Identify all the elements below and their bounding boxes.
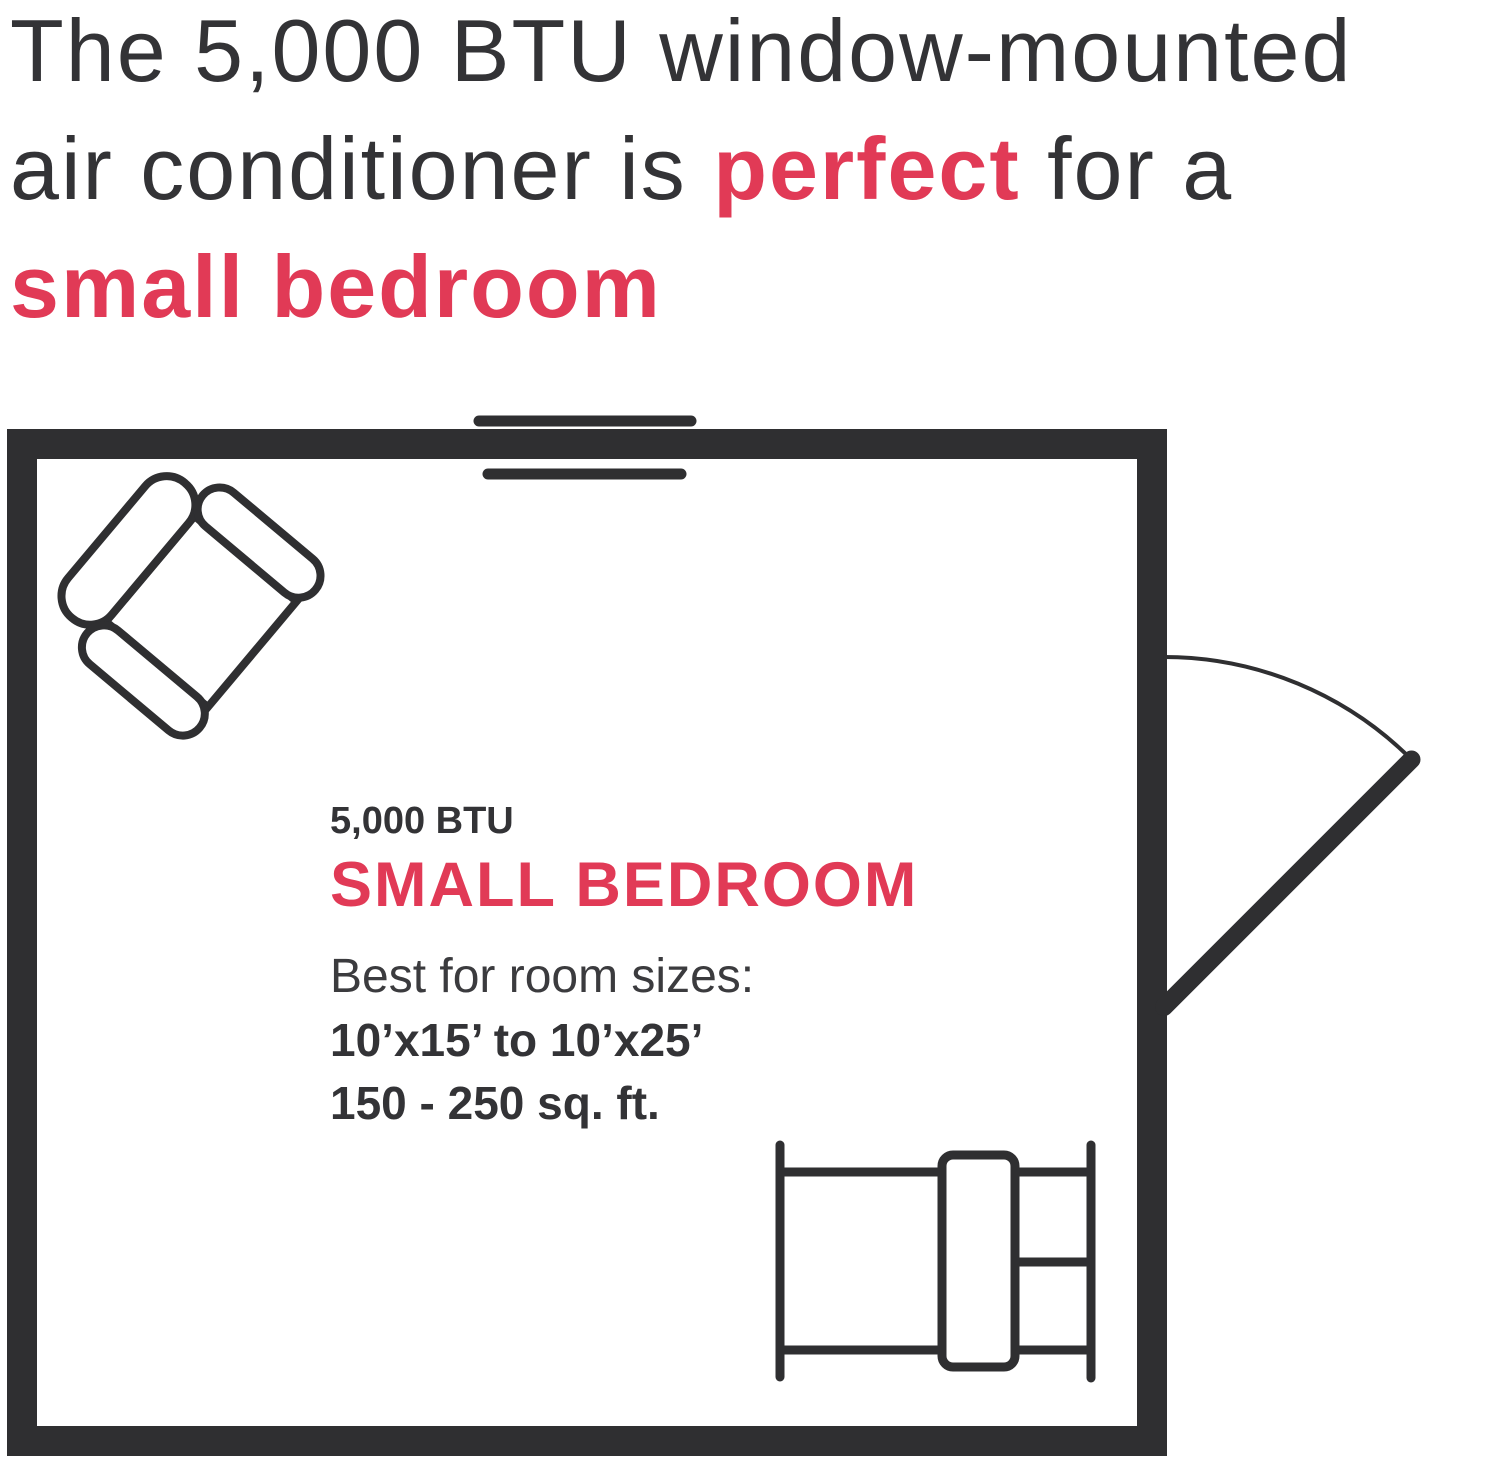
plan-annotation: 5,000 BTU SMALL BEDROOM Best for room si… [330,800,918,1129]
bed-icon [780,1145,1091,1378]
door-swing-icon [1164,657,1412,1007]
headline-text: The 5,000 BTU window-mounted [10,1,1352,100]
floorplan: 5,000 BTU SMALL BEDROOM Best for room si… [0,400,1500,1459]
btu-label: 5,000 BTU [330,800,514,842]
area-label: 150 - 250 sq. ft. [330,1077,660,1129]
door-swing-arc [1164,657,1412,760]
headline-text: air conditioner is [10,119,713,218]
fit-line-label: Best for room sizes: [330,950,754,1003]
headline-line-3: small bedroom [10,228,1495,346]
bed-pillow [942,1155,1015,1367]
headline-line-1: The 5,000 BTU window-mounted [10,0,1495,110]
door-leaf [1164,760,1412,1008]
floorplan-diagram: 5,000 BTU SMALL BEDROOM Best for room si… [0,400,1500,1459]
dimensions-label: 10’x15’ to 10’x25’ [330,1014,703,1066]
room-type-label: SMALL BEDROOM [330,850,918,920]
headline-text: for a [1021,119,1234,218]
infographic-page: The 5,000 BTU window-mounted air conditi… [0,0,1500,1459]
headline-highlight-small-bedroom: small bedroom [10,237,662,336]
headline-highlight-perfect: perfect [713,119,1020,218]
headline-line-2: air conditioner is perfect for a [10,110,1495,228]
armchair-icon [35,446,330,744]
headline: The 5,000 BTU window-mounted air conditi… [10,0,1495,346]
